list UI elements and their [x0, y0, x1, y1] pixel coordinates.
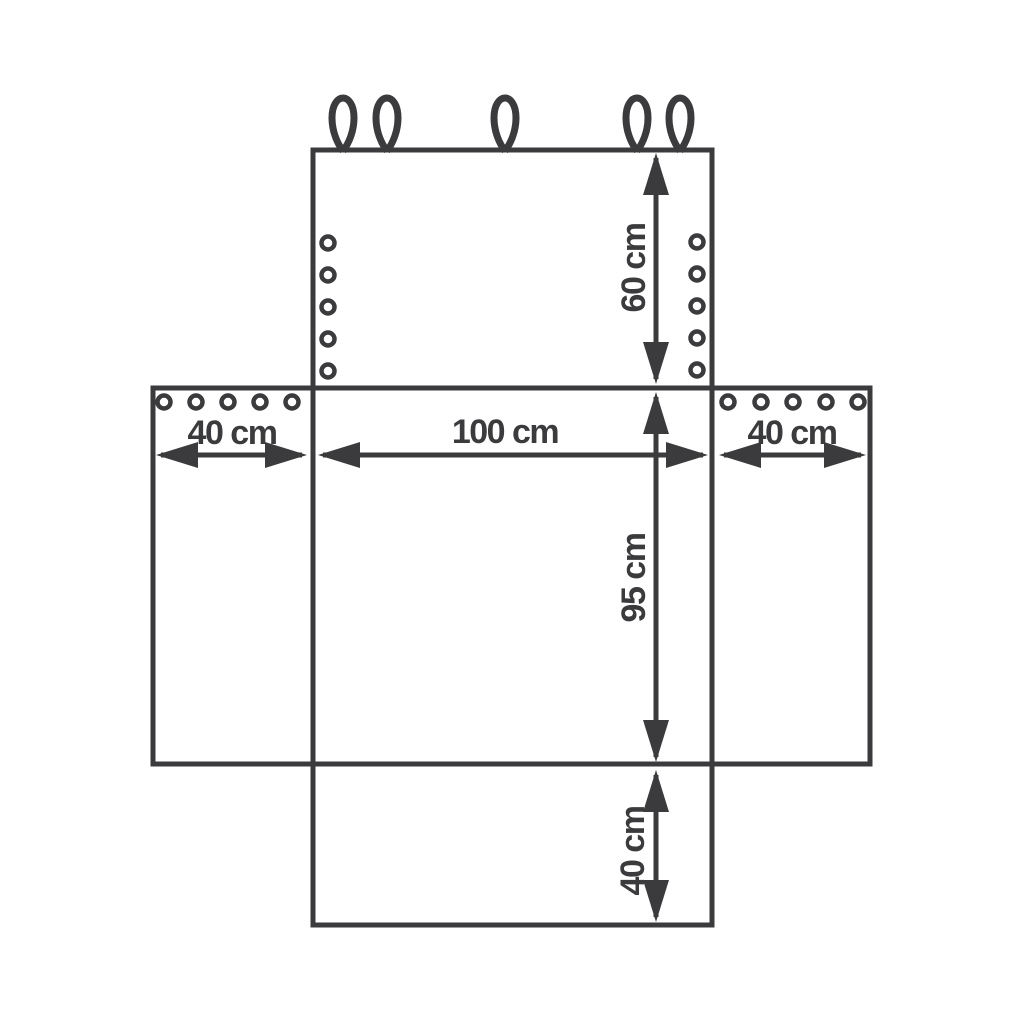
- eyelet-icon: [222, 396, 235, 409]
- diagram-canvas: 60 cm 40 cm 100 cm 40 cm 95: [0, 0, 1024, 1024]
- eyelet-icon: [254, 396, 267, 409]
- eyelets-right-flap-row: [722, 396, 865, 409]
- dimension-arrow-left-width: 40 cm: [156, 414, 307, 468]
- hanging-loops: [332, 98, 691, 151]
- eyelet-icon: [322, 269, 335, 282]
- dimension-arrow-bottom-height: 40 cm: [614, 770, 669, 922]
- arrowhead-down-icon: [643, 720, 669, 762]
- arrowhead-up-icon: [643, 392, 669, 434]
- eyelet-icon: [190, 396, 203, 409]
- dimension-label-right-width: 40 cm: [748, 414, 837, 452]
- eyelet-icon: [691, 364, 704, 377]
- dimension-label-center-width: 100 cm: [452, 413, 559, 451]
- dimension-label-bottom-height: 40 cm: [614, 806, 652, 895]
- eyelet-icon: [787, 396, 800, 409]
- arrowhead-up-icon: [643, 153, 669, 195]
- eyelets-top-panel-right-column: [691, 236, 704, 377]
- eyelet-icon: [322, 301, 335, 314]
- arrowhead-up-icon: [643, 770, 669, 812]
- dimension-arrow-top-height: 60 cm: [615, 153, 669, 384]
- dimension-label-center-height: 95 cm: [615, 533, 653, 622]
- dimension-arrow-center-height: 95 cm: [615, 392, 669, 762]
- hanging-loop-icon: [376, 98, 398, 151]
- eyelet-icon: [322, 365, 335, 378]
- arrowhead-down-icon: [643, 342, 669, 384]
- dimension-diagram: 60 cm 40 cm 100 cm 40 cm 95: [0, 0, 1024, 1024]
- eyelet-icon: [722, 396, 735, 409]
- eyelet-icon: [286, 396, 299, 409]
- dimension-label-top-height: 60 cm: [615, 223, 653, 312]
- eyelet-icon: [691, 300, 704, 313]
- hanging-loop-icon: [494, 98, 516, 151]
- hanging-loop-icon: [669, 98, 691, 151]
- hanging-loop-icon: [332, 98, 354, 151]
- eyelet-icon: [691, 268, 704, 281]
- eyelet-icon: [755, 396, 768, 409]
- eyelets-top-panel-left-column: [322, 237, 335, 378]
- eyelet-icon: [691, 332, 704, 345]
- arrowhead-left-icon: [318, 442, 360, 468]
- eyelet-icon: [691, 236, 704, 249]
- eyelet-icon: [820, 396, 833, 409]
- dimension-label-left-width: 40 cm: [188, 414, 277, 452]
- eyelet-icon: [322, 333, 335, 346]
- dimension-arrow-right-width: 40 cm: [719, 414, 866, 468]
- arrowhead-right-icon: [666, 442, 708, 468]
- eyelets-left-flap-row: [158, 396, 299, 409]
- eyelet-icon: [158, 396, 171, 409]
- eyelet-icon: [322, 237, 335, 250]
- eyelet-icon: [852, 396, 865, 409]
- hanging-loop-icon: [626, 98, 648, 151]
